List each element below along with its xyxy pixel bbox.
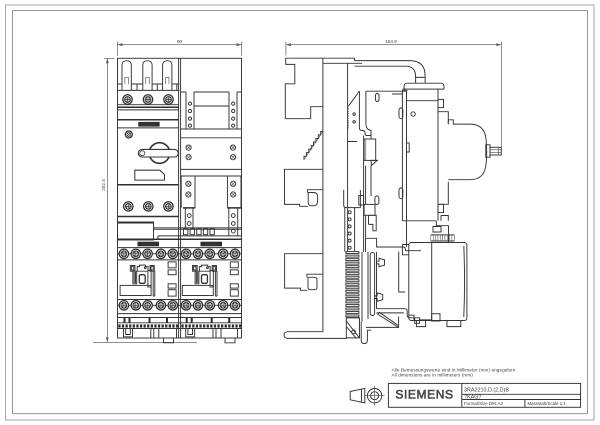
svg-text:SIEMENS: SIEMENS — [141, 243, 155, 247]
svg-text:Format/Size DIN A3: Format/Size DIN A3 — [464, 401, 503, 406]
svg-text:90: 90 — [177, 39, 183, 44]
svg-text:SIEMENS: SIEMENS — [141, 123, 158, 127]
svg-text:All dimensions are in millimet: All dimensions are in millimeters (mm) — [392, 372, 474, 377]
svg-text:SIEMENS: SIEMENS — [395, 388, 453, 402]
svg-text:154.9: 154.9 — [385, 39, 397, 44]
svg-text:?KAG?: ?KAG? — [464, 395, 481, 401]
svg-text:202.4: 202.4 — [101, 179, 106, 191]
svg-text:SIEMENS: SIEMENS — [204, 243, 218, 247]
svg-text:Massstab/Scale 1:1: Massstab/Scale 1:1 — [528, 401, 567, 406]
svg-text:3RA2210.D.(2,D)B: 3RA2210.D.(2,D)B — [464, 388, 509, 394]
